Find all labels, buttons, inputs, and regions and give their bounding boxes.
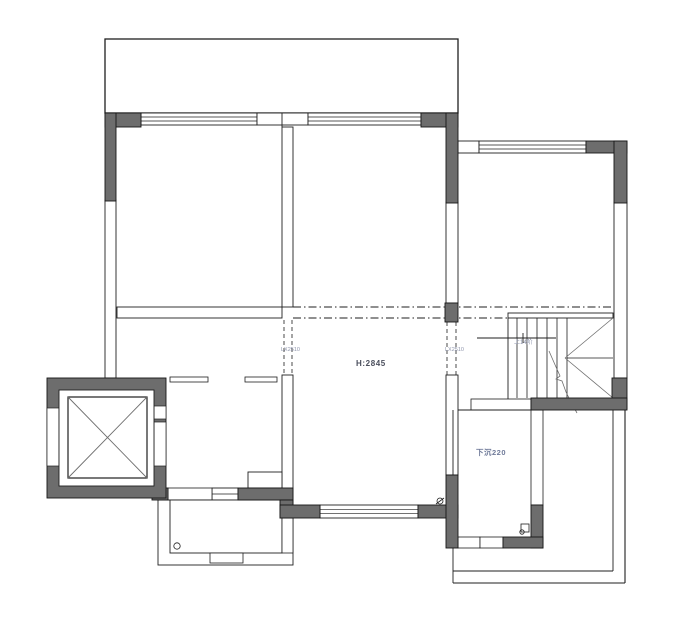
stair-landing-step <box>471 399 531 410</box>
label-ceiling-height: H:2845 <box>356 359 386 368</box>
terrace-top <box>105 39 458 113</box>
elevator-door-gap <box>154 406 166 419</box>
door-symbol <box>521 524 529 532</box>
elevator-door-gap <box>47 408 59 466</box>
door-cell <box>480 537 503 548</box>
door-sill <box>245 377 277 382</box>
label-sunken: 下沉220 <box>476 447 506 457</box>
window-top-center <box>308 113 421 125</box>
door-sill <box>170 377 208 382</box>
wall-dark <box>280 505 320 518</box>
wall-band <box>168 488 212 500</box>
floorplan-svg: H:2845LX2510LX2510上14阶下沉220 <box>0 0 692 620</box>
wall-column <box>445 303 458 322</box>
bathroom-room <box>170 500 282 553</box>
stair-winder <box>565 358 613 398</box>
wall-band <box>446 375 458 475</box>
window-bottom-center <box>320 505 418 518</box>
stair-top-band <box>508 313 613 318</box>
bathroom-step <box>210 553 243 563</box>
window-top-right <box>479 141 586 153</box>
wall-dark <box>503 537 543 548</box>
window-right-wall <box>614 202 627 378</box>
label-stair-note: 上14阶 <box>514 338 533 346</box>
stair-winder <box>565 318 613 358</box>
wall-band <box>446 202 458 303</box>
label-beam-right: LX2510 <box>445 347 464 353</box>
wall-dark <box>446 113 458 203</box>
wall-dark <box>238 488 293 500</box>
wall-band <box>257 113 308 125</box>
wall-dark <box>614 141 627 203</box>
wall-left-room-bottom <box>117 307 282 318</box>
floorplan-page: H:2845LX2510LX2510上14阶下沉220 <box>0 0 692 620</box>
wall-dark <box>105 113 116 201</box>
niche <box>248 472 282 488</box>
window-top-left <box>141 113 257 125</box>
door-cell <box>458 537 480 548</box>
window-left-wall <box>105 200 116 378</box>
label-beam-left: LX2510 <box>281 347 300 353</box>
elevator-door-gap <box>154 422 166 466</box>
wall-divider-lower <box>282 375 293 500</box>
wall-dark <box>531 398 627 410</box>
wall-band <box>531 410 543 505</box>
wall-dark <box>446 475 458 548</box>
wall-band <box>458 141 479 153</box>
wall-band <box>282 518 293 553</box>
wall-divider-upper <box>282 127 293 307</box>
